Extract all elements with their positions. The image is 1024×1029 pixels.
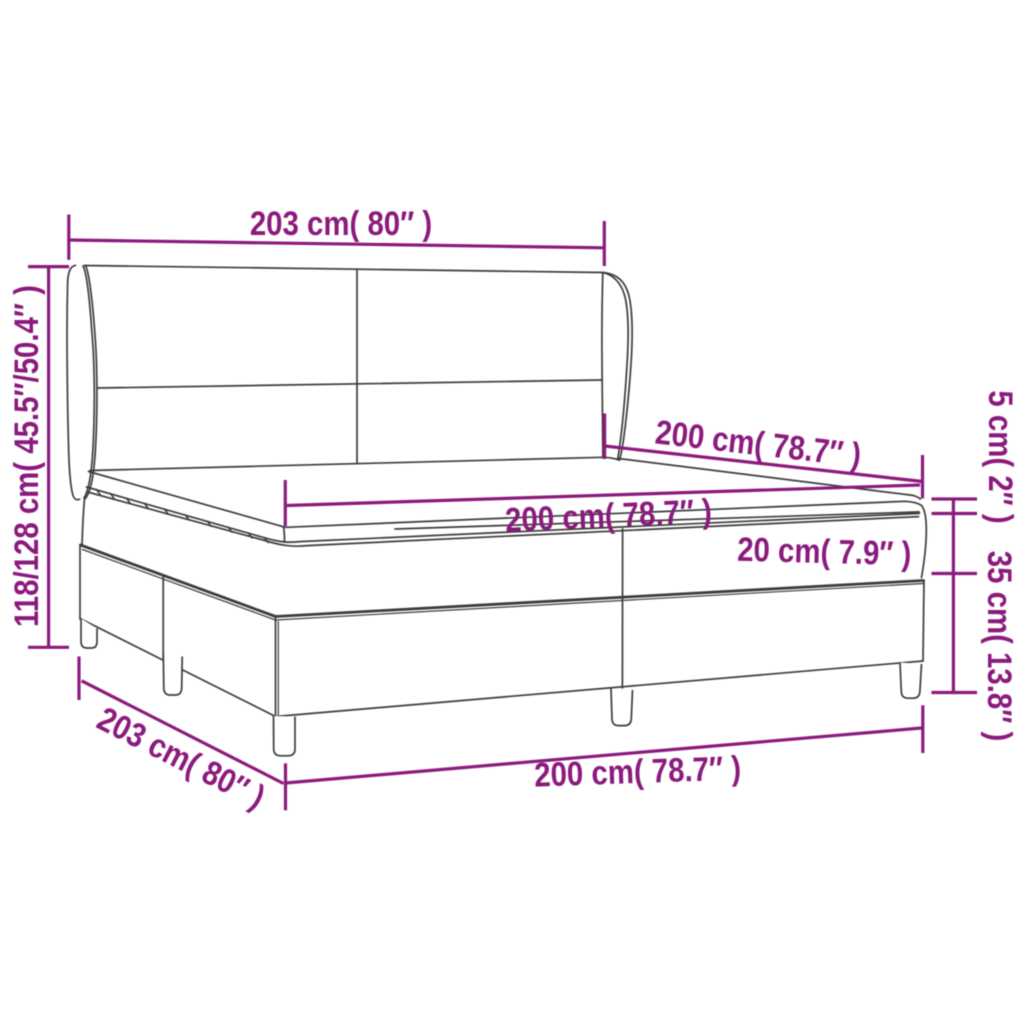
svg-text:35 cm( 13.8″ ): 35 cm( 13.8″ ) <box>981 551 1020 742</box>
svg-text:118/128 cm( 45.5″/50.4″ ): 118/128 cm( 45.5″/50.4″ ) <box>7 285 46 627</box>
svg-text:200 cm( 78.7″ ): 200 cm( 78.7″ ) <box>534 748 742 794</box>
svg-text:203 cm( 80″ ): 203 cm( 80″ ) <box>250 204 432 243</box>
svg-text:5 cm( 2″ ): 5 cm( 2″ ) <box>982 390 1021 523</box>
svg-text:20 cm( 7.9″ ): 20 cm( 7.9″ ) <box>737 530 912 573</box>
